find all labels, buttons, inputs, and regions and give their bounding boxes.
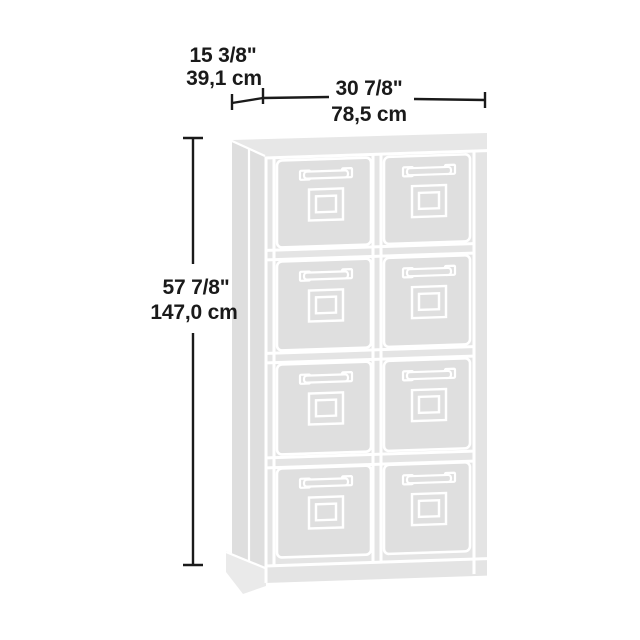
height-cm-label: 147,0 cm: [150, 301, 237, 324]
bin-handle: [407, 371, 451, 379]
storage-bin: [384, 358, 470, 451]
bin-handle: [407, 475, 451, 483]
diagram-canvas: 15 3/8" 39,1 cm 30 7/8" 78,5 cm 57 7/8" …: [0, 0, 640, 640]
storage-bin: [384, 462, 470, 554]
cabinet-front-face: [265, 150, 487, 583]
width-segment-left: [263, 97, 329, 98]
height-dimension-line: [183, 138, 203, 565]
bin-handle: [407, 268, 451, 276]
storage-bin: [384, 255, 470, 347]
bin-handle: [304, 374, 348, 382]
width-inches-label: 30 7/8": [336, 77, 403, 100]
storage-bin: [384, 154, 470, 244]
bin-handle: [304, 170, 348, 178]
depth-inches-label: 15 3/8": [190, 44, 257, 67]
storage-bin: [277, 157, 371, 247]
storage-bin: [277, 465, 371, 557]
cabinet-illustration: [226, 133, 487, 594]
height-inches-label: 57 7/8": [163, 276, 230, 299]
storage-bin: [277, 258, 371, 350]
depth-segment: [232, 98, 263, 103]
product-dimension-diagram: 15 3/8" 39,1 cm 30 7/8" 78,5 cm 57 7/8" …: [0, 0, 640, 640]
storage-bin: [277, 361, 371, 454]
width-segment-right: [414, 99, 485, 100]
bin-handle: [304, 271, 348, 279]
depth-cm-label: 39,1 cm: [186, 67, 262, 90]
bin-handle: [407, 167, 451, 175]
width-cm-label: 78,5 cm: [331, 103, 407, 126]
bin-handle: [304, 478, 348, 486]
